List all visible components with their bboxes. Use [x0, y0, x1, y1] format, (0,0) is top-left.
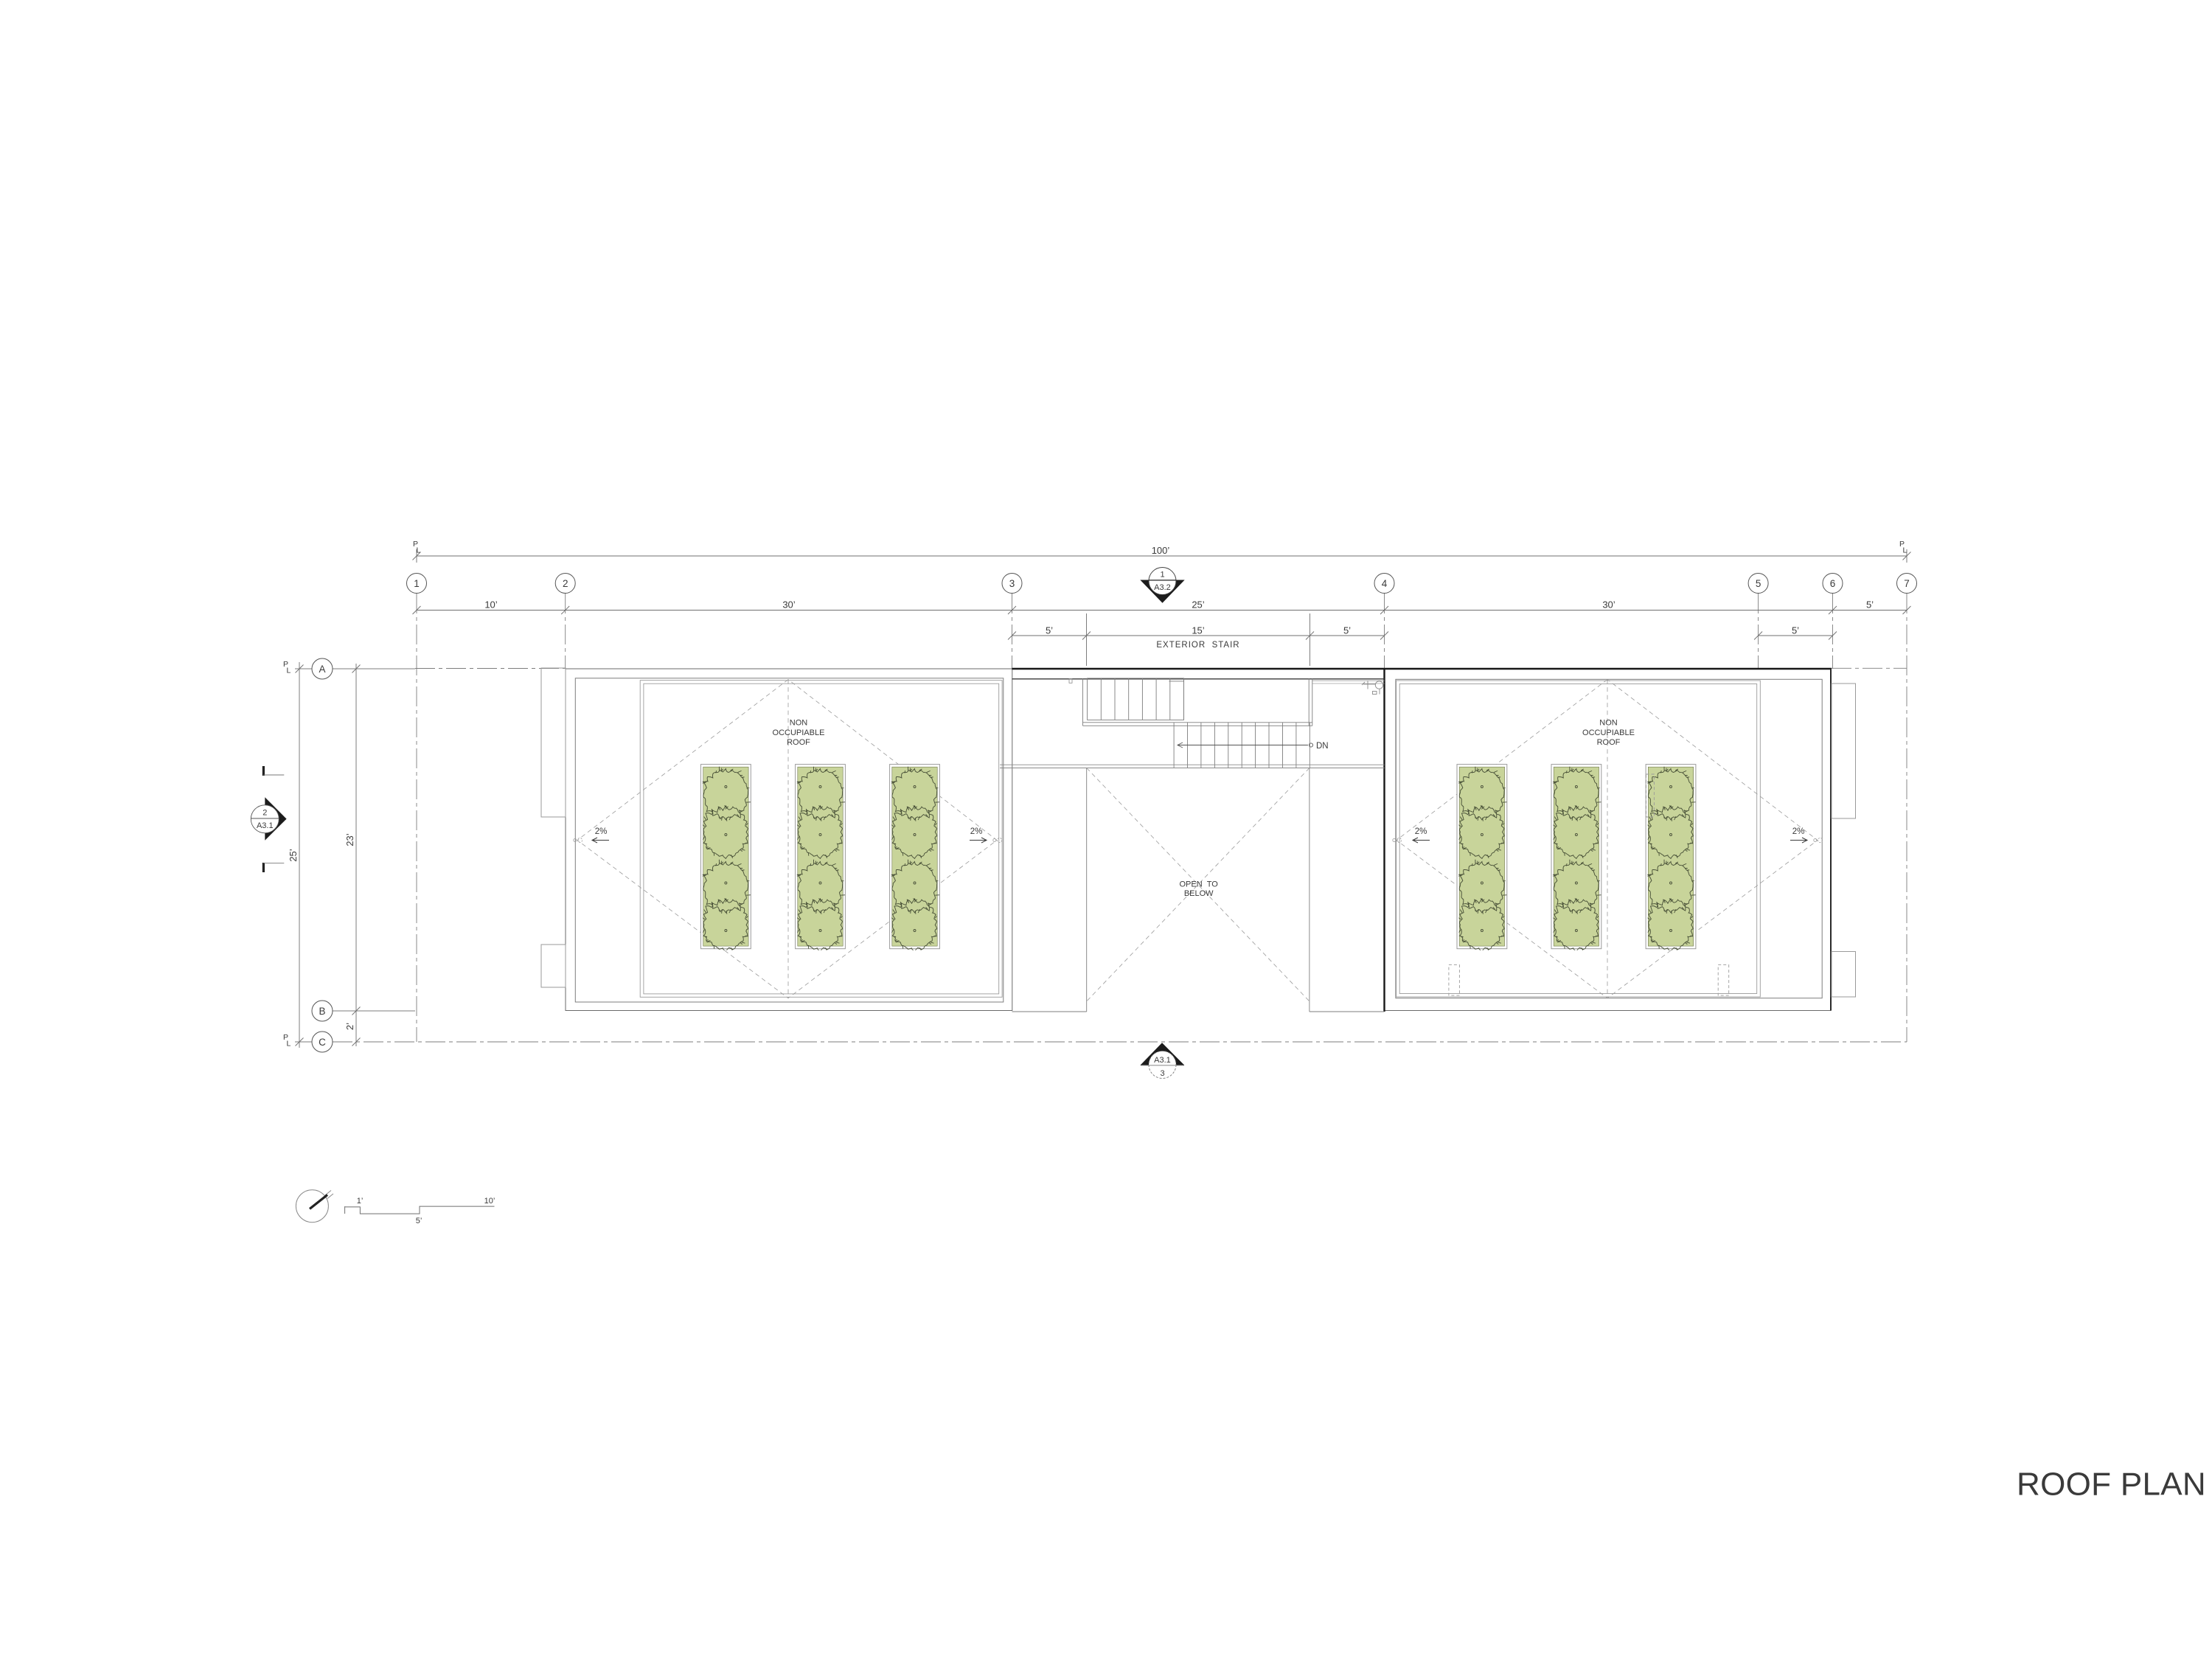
svg-text:2: 2 — [262, 809, 267, 818]
svg-text:OCCUPIABLE: OCCUPIABLE — [1582, 728, 1635, 737]
svg-text:2%: 2% — [1792, 827, 1805, 836]
svg-text:B: B — [319, 1006, 325, 1017]
svg-text:A: A — [319, 664, 325, 675]
svg-text:25’: 25’ — [1192, 599, 1204, 611]
svg-text:10’: 10’ — [484, 1197, 495, 1206]
svg-text:15’: 15’ — [1192, 625, 1204, 636]
svg-text:ROOF PLAN: ROOF PLAN — [2017, 1467, 2206, 1503]
svg-text:3: 3 — [1160, 1069, 1164, 1078]
svg-text:6: 6 — [1830, 578, 1836, 589]
svg-text:4: 4 — [1382, 578, 1388, 589]
svg-text:BELOW: BELOW — [1184, 889, 1214, 898]
svg-text:1: 1 — [1160, 571, 1164, 580]
svg-text:3: 3 — [1009, 578, 1015, 589]
svg-text:2’: 2’ — [344, 1023, 355, 1030]
svg-text:10’: 10’ — [484, 599, 497, 611]
svg-text:L: L — [1903, 546, 1907, 555]
svg-text:25’: 25’ — [288, 849, 299, 861]
svg-text:5’: 5’ — [1343, 625, 1351, 636]
svg-text:A3.1: A3.1 — [257, 821, 274, 830]
svg-text:7: 7 — [1904, 578, 1910, 589]
svg-text:2%: 2% — [595, 827, 608, 836]
svg-text:L: L — [287, 1040, 291, 1048]
svg-text:2%: 2% — [970, 827, 983, 836]
svg-text:NON: NON — [1599, 719, 1618, 728]
svg-text:ROOF: ROOF — [787, 738, 810, 747]
svg-text:5’: 5’ — [1792, 625, 1799, 636]
svg-text:A3.1: A3.1 — [1154, 1056, 1171, 1065]
svg-text:OPEN TO: OPEN TO — [1180, 880, 1219, 889]
svg-text:5’: 5’ — [416, 1217, 422, 1225]
svg-text:5’: 5’ — [1046, 625, 1053, 636]
svg-text:5’: 5’ — [1866, 599, 1874, 611]
svg-text:2: 2 — [563, 578, 568, 589]
svg-text:ROOF: ROOF — [1597, 738, 1621, 747]
svg-text:1: 1 — [414, 578, 420, 589]
svg-text:30’: 30’ — [782, 599, 795, 611]
svg-text:A3.2: A3.2 — [1154, 583, 1171, 592]
svg-text:L: L — [287, 667, 291, 675]
svg-text:100’: 100’ — [1152, 545, 1170, 556]
svg-text:23’: 23’ — [344, 833, 355, 846]
svg-text:C: C — [319, 1037, 326, 1048]
svg-text:L: L — [417, 546, 421, 555]
svg-text:NON: NON — [790, 719, 808, 728]
svg-text:DN: DN — [1316, 742, 1329, 751]
svg-text:5: 5 — [1756, 578, 1761, 589]
svg-text:OCCUPIABLE: OCCUPIABLE — [773, 728, 825, 737]
svg-text:1’: 1’ — [357, 1197, 364, 1206]
svg-text:2%: 2% — [1415, 827, 1427, 836]
svg-text:EXTERIOR STAIR: EXTERIOR STAIR — [1156, 641, 1239, 650]
svg-text:30’: 30’ — [1602, 599, 1615, 611]
